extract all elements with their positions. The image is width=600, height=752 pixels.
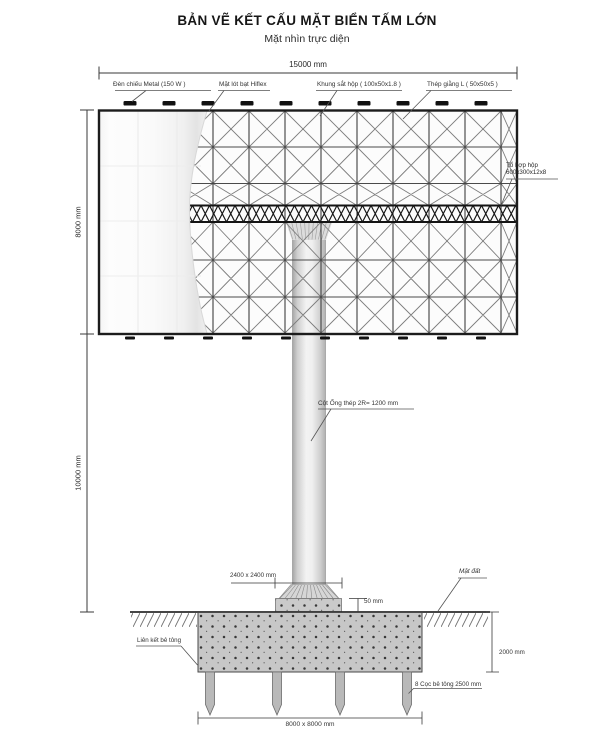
page-title: BẢN VẼ KẾT CẤU MẶT BIỂN TẤM LỚN — [0, 13, 600, 28]
leader-ground — [438, 578, 487, 611]
callout-concrete-link: Liên kết bê tông — [137, 637, 181, 644]
callout-brace: Thép giằng L ( 50x50x5 ) — [427, 81, 498, 88]
leader-lamp — [115, 91, 211, 102]
callout-lamp: Đèn chiếu Metal (150 W ) — [113, 81, 185, 88]
dim-pole-height: 10000 mm — [74, 455, 83, 490]
dim-plate-offset: 50 mm — [364, 598, 383, 605]
callout-box-beam-line1: Tổ hợp hộp — [506, 162, 546, 169]
leader-pole — [311, 409, 414, 441]
callout-box-beam-line2: 600x300x12x8 — [506, 169, 546, 176]
leader-hiflex — [209, 91, 270, 112]
structural-drawing — [0, 0, 600, 752]
callout-frame: Khung sắt hộp ( 100x50x1.8 ) — [317, 81, 401, 88]
pole-top-gusset — [286, 223, 332, 241]
dim-board-height: 8000 mm — [74, 206, 83, 237]
pole-shaft — [293, 334, 326, 585]
pedestal-concrete-texture — [276, 599, 342, 613]
dim-base-plate: 2400 x 2400 mm — [230, 572, 276, 579]
callout-hiflex: Mặt lót bạt Hiflex — [219, 81, 267, 88]
leader-piles — [409, 689, 483, 694]
page-subtitle: Mặt nhìn trực diện — [0, 33, 600, 45]
callout-box-beam: Tổ hợp hộp 600x300x12x8 — [506, 162, 546, 177]
concrete-piles — [206, 672, 412, 715]
callout-ground: Mặt đất — [459, 568, 480, 575]
dim-line-8000-10000 — [80, 110, 94, 612]
leader-concrete-link — [136, 646, 198, 665]
ground-hatch-left — [131, 613, 197, 627]
callout-pole: Cột Ống thép 2R= 1200 mm — [318, 400, 398, 407]
dim-foundation-plan: 8000 x 8000 mm — [198, 721, 422, 728]
foundation-concrete-texture — [199, 614, 421, 672]
ground-hatch-right — [424, 613, 488, 627]
dim-board-width: 15000 mm — [0, 60, 600, 69]
billboard-structure-drawing-page: BẢN VẼ KẾT CẤU MẶT BIỂN TẤM LỚN Mặt nhìn… — [0, 0, 600, 752]
pole-base-flare — [279, 585, 339, 599]
dim-foundation-depth: 2000 mm — [499, 649, 525, 656]
callout-piles: 8 Cọc bê tông 2500 mm — [415, 681, 481, 688]
